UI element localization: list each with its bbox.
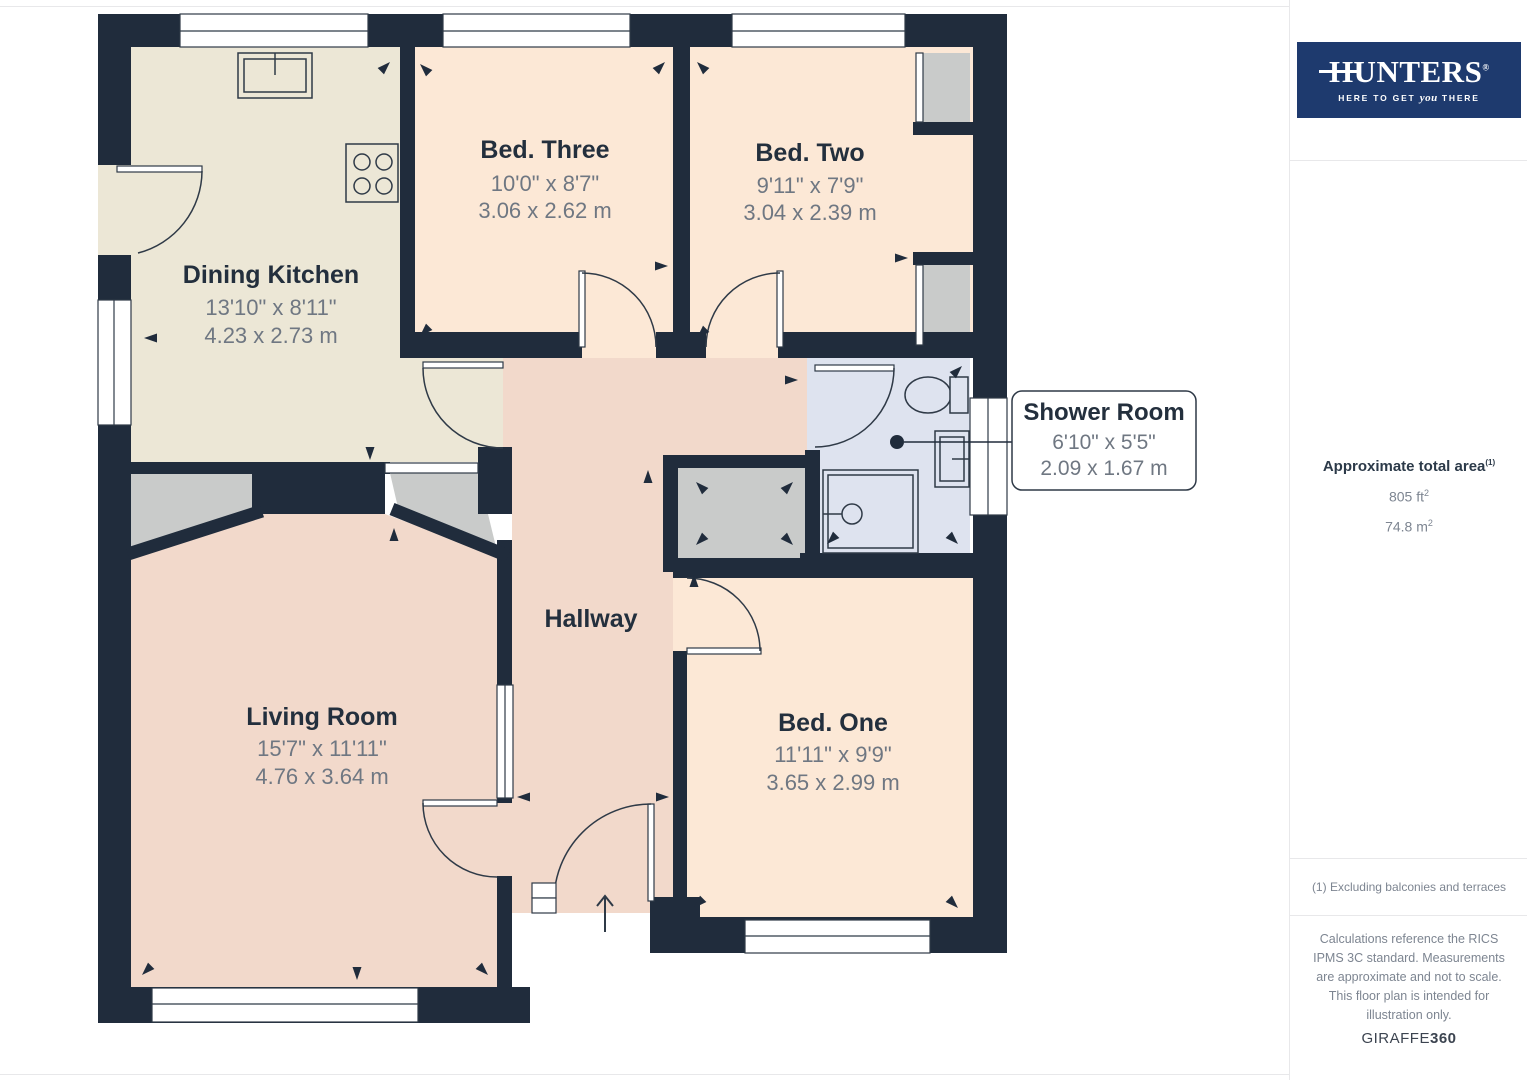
kitchen-sink — [238, 53, 312, 98]
shower-room-metric: 2.09 x 1.67 m — [1040, 457, 1167, 480]
giraffe360-logo: GIRAFFE360 — [1290, 1030, 1527, 1047]
room-label-dining-kitchen: Dining Kitchen — [183, 261, 359, 289]
washbasin — [935, 431, 969, 487]
shower-room-imperial: 6'10" x 5'5" — [1052, 431, 1156, 454]
sidebar-divider-1 — [1290, 160, 1527, 161]
room-label-living-room: Living Room — [246, 703, 397, 731]
hunters-logo: HUNTERS® HERE TO GET you THERE — [1297, 42, 1521, 118]
window-living-internal — [497, 685, 513, 798]
approximate-area-block: Approximate total area(1) 805 ft2 74.8 m… — [1290, 458, 1527, 534]
dining-kitchen-floor — [131, 47, 400, 462]
bed-two-metric: 3.04 x 2.39 m — [743, 200, 876, 225]
toilet — [905, 377, 968, 413]
living-room-metric: 4.76 x 3.64 m — [255, 764, 388, 789]
hallway-floor-mid — [512, 455, 663, 572]
chimney-breast — [252, 474, 385, 514]
window-kitchen-left — [98, 300, 131, 425]
hunters-wordmark: HUNTERS® — [1297, 56, 1521, 87]
hallway-floor-top — [503, 358, 807, 455]
bed-three-imperial: 10'0" x 8'7" — [491, 171, 599, 196]
bed-two-cupboard-top — [920, 53, 970, 122]
hall-cupboard — [678, 468, 807, 558]
window-bed-two-top — [732, 14, 905, 47]
bed-two-cupboard-top-door — [916, 53, 923, 122]
living-room-imperial: 15'7" x 11'11" — [257, 736, 387, 761]
area-footnote-marker: (1) — [1485, 458, 1495, 467]
window-bed-one-bottom — [745, 920, 930, 953]
entrance-step — [532, 883, 556, 913]
room-label-bed-one: Bed. One — [778, 709, 888, 737]
window-shower-right — [970, 398, 1007, 515]
bed-three-metric: 3.06 x 2.62 m — [478, 198, 611, 223]
area-title: Approximate total area(1) — [1290, 458, 1527, 475]
window-living-bottom — [152, 988, 418, 1022]
dining-kitchen-metric: 4.23 x 2.73 m — [204, 323, 337, 348]
bed-one-imperial: 11'11" x 9'9" — [774, 742, 891, 767]
sidebar-divider-3 — [1290, 915, 1527, 916]
hunters-tagline: HERE TO GET you THERE — [1297, 92, 1521, 104]
area-metric: 74.8 m2 — [1290, 518, 1527, 535]
h-strike-line — [1319, 70, 1357, 73]
balconies-footnote: (1) Excluding balconies and terraces — [1290, 858, 1527, 915]
bed-two-cupboard-bottom-door — [916, 265, 923, 345]
registered-mark: ® — [1482, 63, 1489, 73]
room-label-hallway: Hallway — [544, 605, 637, 633]
kitchen-hatch — [385, 463, 478, 473]
callout-dot — [890, 435, 904, 449]
info-sidebar: HUNTERS® HERE TO GET you THERE Approxima… — [1289, 0, 1527, 1080]
shower-room-label: Shower Room — [1023, 399, 1184, 426]
entrance-arrow-icon — [597, 896, 613, 932]
room-label-bed-three: Bed. Three — [480, 136, 609, 164]
rics-disclaimer: Calculations reference the RICS IPMS 3C … — [1311, 930, 1507, 1025]
room-label-bed-two: Bed. Two — [755, 139, 864, 167]
window-bed-three-top — [443, 14, 630, 47]
dining-kitchen-imperial: 13'10" x 8'11" — [205, 295, 336, 320]
bed-two-imperial: 9'11" x 7'9" — [757, 173, 864, 198]
window-kitchen-top — [180, 14, 368, 47]
floorplan-drawing: Shower Room 6'10" x 5'5" 2.09 x 1.67 m D… — [0, 0, 1288, 1080]
area-imperial: 805 ft2 — [1290, 488, 1527, 505]
bed-one-metric: 3.65 x 2.99 m — [766, 770, 899, 795]
